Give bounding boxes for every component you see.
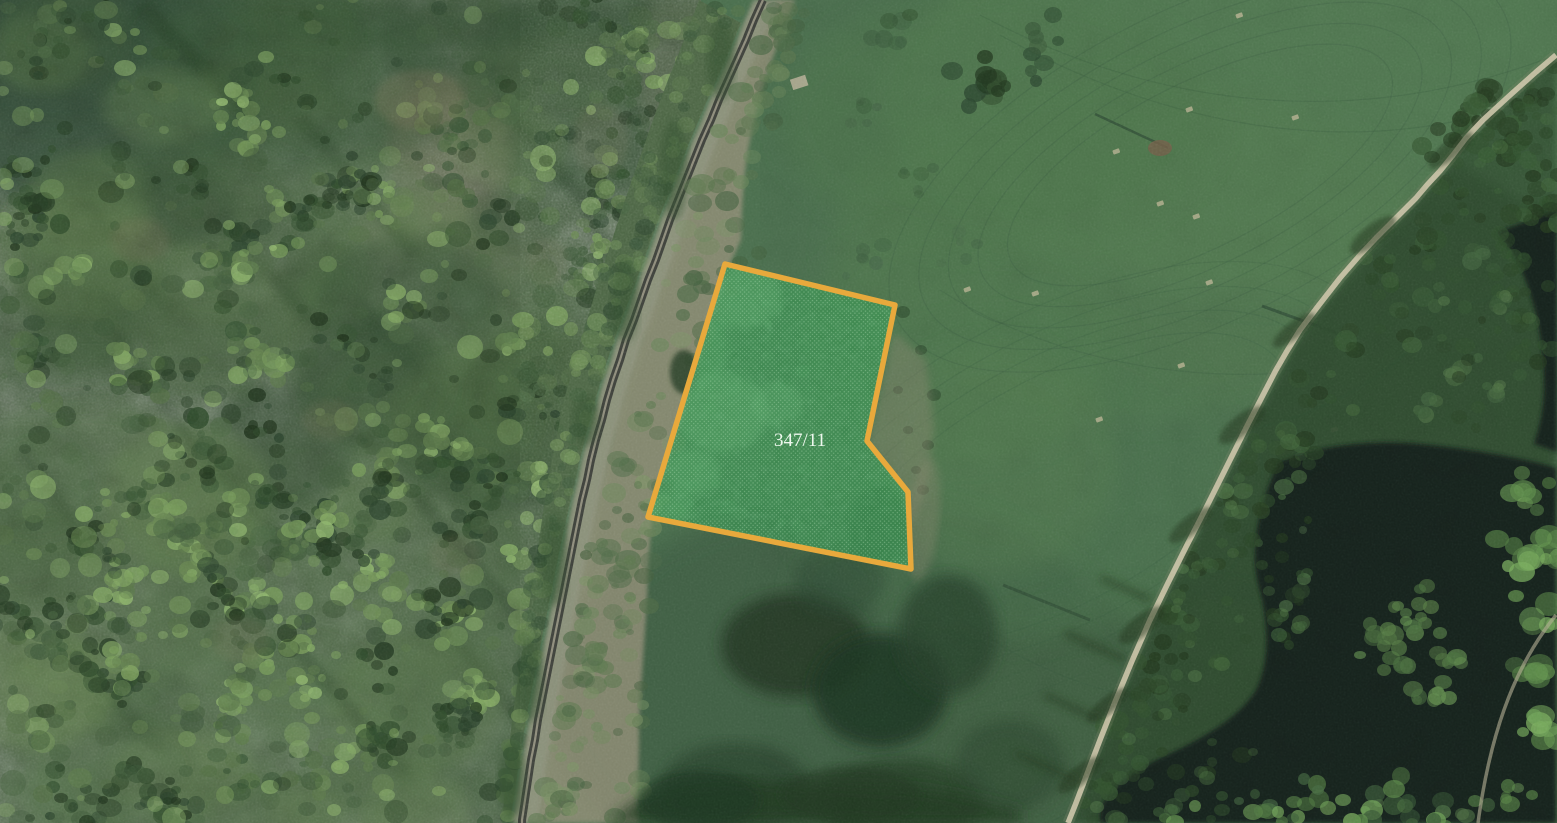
svg-text:347/11: 347/11 [774,430,826,451]
